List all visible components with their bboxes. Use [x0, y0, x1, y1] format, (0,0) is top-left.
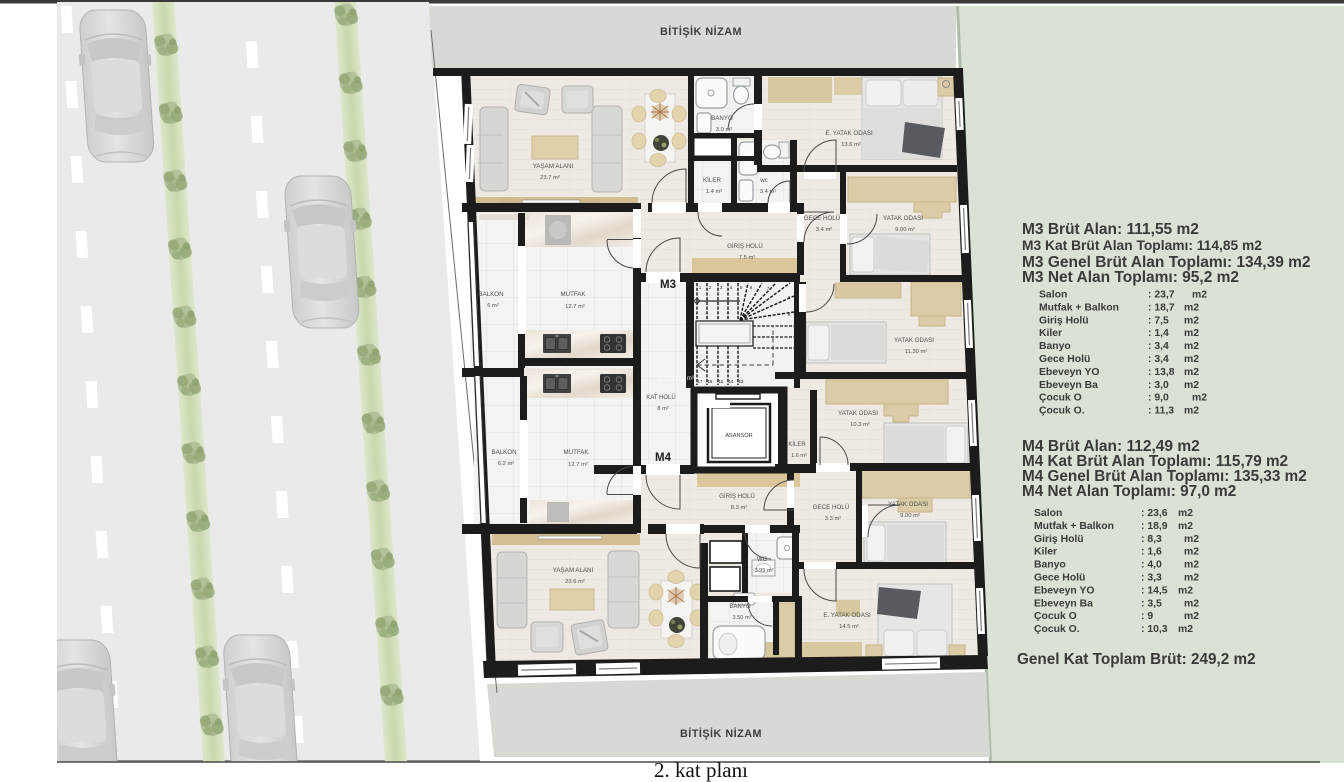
- svg-text:YATAK ODASI: YATAK ODASI: [888, 501, 928, 508]
- svg-text:3.4 m²: 3.4 m²: [760, 189, 776, 195]
- svg-text:Gece Holü: Gece Holü: [1039, 354, 1090, 365]
- svg-text:m2: m2: [1192, 393, 1207, 404]
- svg-text:m2: m2: [1184, 341, 1199, 352]
- svg-text:GECE HOLÜ: GECE HOLÜ: [804, 215, 840, 222]
- svg-text:BİTİŞİK NİZAM: BİTİŞİK NİZAM: [680, 727, 762, 740]
- svg-text:BALKON: BALKON: [491, 449, 516, 456]
- svg-text:3.99 m²: 3.99 m²: [755, 568, 774, 574]
- svg-text:: 3,3: : 3,3: [1141, 573, 1162, 584]
- svg-text:m2: m2: [1184, 534, 1199, 545]
- svg-text:: 3,0: : 3,0: [1148, 380, 1169, 391]
- svg-text:: 1,6: : 1,6: [1141, 547, 1162, 558]
- svg-text:: 3,4: : 3,4: [1148, 341, 1169, 352]
- svg-text:Salon: Salon: [1039, 290, 1067, 301]
- svg-text:GİRİŞ HOLÜ: GİRİŞ HOLÜ: [719, 493, 755, 500]
- svg-text:: 18,9: : 18,9: [1141, 521, 1168, 532]
- svg-text:BİTİŞİK NİZAM: BİTİŞİK NİZAM: [660, 25, 742, 38]
- svg-text:8 m²: 8 m²: [657, 406, 668, 412]
- svg-text:: 3,5: : 3,5: [1141, 598, 1162, 609]
- svg-text:m2: m2: [1184, 302, 1199, 313]
- svg-text:Giriş Holü: Giriş Holü: [1034, 534, 1084, 545]
- svg-text:Ebeveyn Ba: Ebeveyn Ba: [1039, 380, 1098, 391]
- svg-text:MUTFAK: MUTFAK: [560, 291, 586, 298]
- svg-text:15: 15: [719, 379, 724, 384]
- svg-text:KİLER: KİLER: [703, 177, 721, 184]
- svg-text:Çocuk O: Çocuk O: [1034, 611, 1077, 622]
- svg-text:Ebeveyn Ba: Ebeveyn Ba: [1034, 598, 1093, 609]
- svg-text:14: 14: [729, 379, 734, 384]
- svg-text:Çocuk O.: Çocuk O.: [1034, 624, 1080, 635]
- svg-text:m2: m2: [1184, 354, 1199, 365]
- svg-text:7.5 m²: 7.5 m²: [739, 255, 755, 261]
- svg-text:KAT HOLÜ: KAT HOLÜ: [646, 394, 675, 401]
- svg-text:m2: m2: [1184, 560, 1199, 571]
- svg-text:Banyo: Banyo: [1039, 341, 1071, 352]
- svg-text:23.6 m²: 23.6 m²: [565, 579, 585, 585]
- svg-text:2. kat planı: 2. kat planı: [654, 758, 748, 782]
- svg-text:13: 13: [739, 379, 744, 384]
- svg-text:: 9: : 9: [1141, 611, 1153, 622]
- svg-text:Gece Holü: Gece Holü: [1034, 573, 1085, 584]
- svg-text:Giriş Holü: Giriş Holü: [1039, 315, 1089, 326]
- svg-text:Çocuk O: Çocuk O: [1039, 393, 1082, 404]
- svg-text:YATAK ODASI: YATAK ODASI: [838, 410, 878, 417]
- svg-text:9.00 m²: 9.00 m²: [900, 513, 920, 519]
- svg-text:BALKON: BALKON: [478, 291, 503, 298]
- svg-text:MUTFAK: MUTFAK: [563, 449, 589, 456]
- svg-text:9.00 m²: 9.00 m²: [895, 227, 915, 233]
- svg-text:: 4,0: : 4,0: [1141, 560, 1162, 571]
- svg-text:M3 Net Alan Toplamı: 95,2 m2: M3 Net Alan Toplamı: 95,2 m2: [1022, 269, 1239, 286]
- svg-text:16: 16: [708, 379, 713, 384]
- svg-text:m2: m2: [1184, 367, 1199, 378]
- svg-text:E. YATAK ODASI: E. YATAK ODASI: [825, 130, 873, 137]
- svg-text:Çocuk O.: Çocuk O.: [1039, 406, 1085, 417]
- svg-text:: 7,5: : 7,5: [1148, 315, 1169, 326]
- svg-text:YATAK ODASI: YATAK ODASI: [894, 337, 934, 344]
- svg-text:m2: m2: [1184, 380, 1199, 391]
- svg-text:: 10,3: : 10,3: [1141, 624, 1168, 635]
- svg-text:Kiler: Kiler: [1039, 328, 1062, 339]
- svg-text:BANYO: BANYO: [711, 115, 733, 122]
- svg-text:: 9,0: : 9,0: [1148, 393, 1169, 404]
- svg-text:WC: WC: [757, 557, 768, 563]
- svg-text:Banyo: Banyo: [1034, 560, 1066, 571]
- svg-text:6.2 m²: 6.2 m²: [498, 461, 514, 467]
- svg-text:Kiler: Kiler: [1034, 547, 1057, 558]
- svg-text:wc: wc: [759, 177, 768, 184]
- svg-text:M4: M4: [655, 452, 672, 464]
- svg-text:m2: m2: [1178, 624, 1193, 635]
- svg-text:Genel Kat Toplam Brüt: 249,2 m: Genel Kat Toplam Brüt: 249,2 m2: [1017, 651, 1256, 668]
- svg-text:Mutfak + Balkon: Mutfak + Balkon: [1034, 521, 1114, 532]
- svg-text:12.7 m²: 12.7 m²: [568, 462, 588, 468]
- svg-text:: 3,4: : 3,4: [1148, 354, 1169, 365]
- svg-text:m2: m2: [1184, 598, 1199, 609]
- svg-text:m2: m2: [1178, 521, 1193, 532]
- svg-text:1.4 m²: 1.4 m²: [706, 189, 722, 195]
- svg-text:M4 Net Alan Toplamı: 97,0 m2: M4 Net Alan Toplamı: 97,0 m2: [1022, 483, 1236, 500]
- svg-text:m2: m2: [1192, 290, 1207, 301]
- svg-text:3.50 m²: 3.50 m²: [733, 615, 752, 621]
- svg-text:14.5 m²: 14.5 m²: [839, 624, 859, 630]
- svg-text:: 8,3: : 8,3: [1141, 534, 1162, 545]
- svg-text:23.7 m²: 23.7 m²: [540, 175, 560, 181]
- svg-text:: 11,3: : 11,3: [1148, 406, 1174, 417]
- svg-text:3.3 m²: 3.3 m²: [825, 516, 841, 522]
- svg-text:YAŞAM ALANI: YAŞAM ALANI: [533, 163, 574, 170]
- svg-text:Salon: Salon: [1034, 508, 1062, 519]
- svg-text:Ebeveyn YO: Ebeveyn YO: [1034, 585, 1094, 596]
- svg-text:M3 Brüt Alan: 111,55 m2: M3 Brüt Alan: 111,55 m2: [1022, 221, 1199, 238]
- svg-text:YATAK ODASI: YATAK ODASI: [883, 215, 923, 222]
- svg-text:Ebeveyn YO: Ebeveyn YO: [1039, 367, 1099, 378]
- svg-text:YAŞAM ALANI: YAŞAM ALANI: [553, 567, 594, 574]
- svg-text:M3 Kat Brüt Alan Toplamı: 114,: M3 Kat Brüt Alan Toplamı: 114,85 m2: [1022, 238, 1262, 253]
- svg-text:m2: m2: [1184, 573, 1199, 584]
- svg-text:m2: m2: [1184, 611, 1199, 622]
- svg-text:3.0 m²: 3.0 m²: [716, 127, 732, 133]
- svg-text:KİLER: KİLER: [788, 441, 806, 448]
- svg-text:Mutfak + Balkon: Mutfak + Balkon: [1039, 302, 1119, 313]
- svg-text:ASANSÖR: ASANSÖR: [725, 432, 752, 439]
- svg-text:m2: m2: [1184, 328, 1199, 339]
- svg-text:m2: m2: [1178, 585, 1193, 596]
- svg-text:m2: m2: [1184, 406, 1199, 417]
- svg-text:m2: m2: [1178, 508, 1193, 519]
- svg-text:: 1,4: : 1,4: [1148, 328, 1169, 339]
- svg-text:11.30 m²: 11.30 m²: [905, 349, 928, 355]
- svg-text:12.7 m²: 12.7 m²: [565, 304, 585, 310]
- svg-text:m2: m2: [1184, 315, 1199, 326]
- svg-text:: 13,8: : 13,8: [1148, 367, 1175, 378]
- svg-text:17: 17: [698, 379, 703, 384]
- svg-text:BANYO: BANYO: [729, 604, 750, 610]
- svg-text:E. YATAK ODASI: E. YATAK ODASI: [823, 612, 871, 619]
- svg-text:8.3 m²: 8.3 m²: [731, 505, 747, 511]
- svg-text:m2: m2: [1184, 547, 1199, 558]
- svg-text:: 23,7: : 23,7: [1148, 290, 1175, 301]
- svg-text:: 18,7: : 18,7: [1148, 302, 1175, 313]
- svg-text:13.6 m²: 13.6 m²: [841, 142, 861, 148]
- svg-text:: 23,6: : 23,6: [1141, 508, 1168, 519]
- svg-text:GİRİŞ HOLÜ: GİRİŞ HOLÜ: [727, 243, 763, 250]
- svg-text:3.4 m²: 3.4 m²: [816, 227, 832, 233]
- svg-text:1.6 m²: 1.6 m²: [791, 453, 807, 459]
- svg-text:10.3 m²: 10.3 m²: [850, 422, 870, 428]
- svg-text:: 14,5: : 14,5: [1141, 585, 1168, 596]
- svg-text:GECE HOLÜ: GECE HOLÜ: [813, 504, 849, 511]
- svg-text:T HOLÜ 5 m²: T HOLÜ 5 m²: [658, 375, 695, 382]
- svg-text:M3: M3: [660, 279, 676, 291]
- svg-text:6 m²: 6 m²: [487, 303, 499, 309]
